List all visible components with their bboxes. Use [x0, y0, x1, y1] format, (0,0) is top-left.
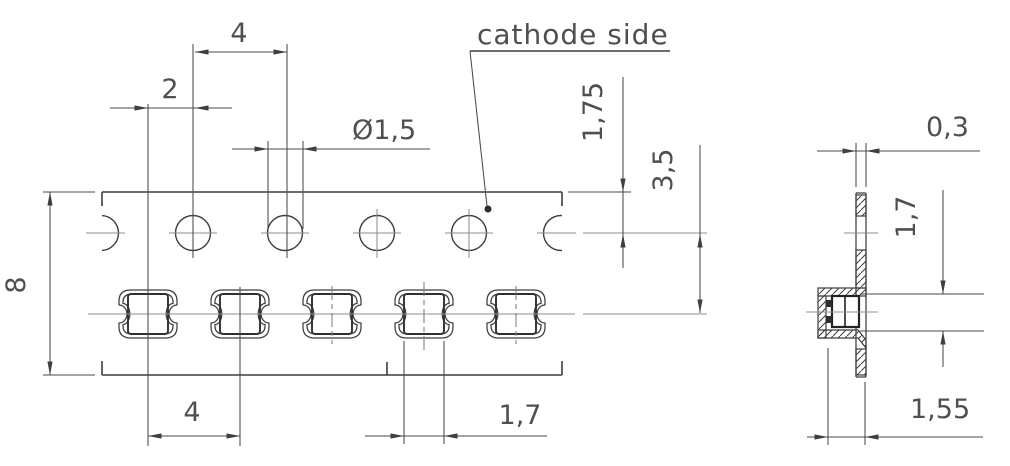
dim-hole-pitch-label: 4 — [230, 18, 247, 49]
dim-hole-offset-label: 2 — [161, 74, 178, 105]
component-pockets — [88, 104, 707, 446]
cathode-side-callout: cathode side — [470, 18, 670, 213]
dim-pocket-opening-label: 1,7 — [499, 400, 542, 431]
dim-pocket-inner: 1,7 — [860, 190, 984, 367]
dim-edge-to-holes-label: 1,75 — [578, 82, 609, 142]
side-view: 0,3 1,7 1,55 — [806, 112, 984, 445]
cathode-side-label: cathode side — [477, 18, 669, 51]
dim-pocket-depth-label: 1,55 — [910, 394, 970, 425]
dim-tape-width-label: 8 — [1, 276, 32, 293]
dim-holes-to-pockets: 3,5 — [648, 145, 703, 313]
dim-hole-diameter: Ø1,5 — [232, 115, 430, 229]
component-section — [806, 296, 878, 327]
tape-web-section — [844, 193, 878, 377]
engineering-drawing-carrier-tape: 8 4 2 Ø1,5 — [0, 0, 1010, 466]
sprocket-holes — [84, 44, 579, 258]
dim-edge-to-holes: 1,75 — [568, 77, 707, 268]
dim-tape-thickness-label: 0,3 — [926, 112, 969, 143]
dim-pocket-depth: 1,55 — [807, 348, 983, 445]
dim-hole-diameter-label: Ø1,5 — [352, 115, 416, 146]
tape-outline — [102, 192, 562, 375]
dim-tape-width: 8 — [1, 192, 95, 375]
dim-pocket-opening: 1,7 — [365, 341, 547, 444]
dim-holes-to-pockets-label: 3,5 — [648, 149, 679, 192]
dim-hole-pitch: 4 — [195, 18, 287, 55]
dim-hole-offset: 2 — [110, 74, 232, 111]
leader-dot — [485, 206, 492, 213]
dim-pocket-pitch-label: 4 — [183, 397, 200, 428]
dim-pocket-inner-label: 1,7 — [891, 196, 922, 239]
cathode-mark — [826, 300, 832, 307]
top-view: 8 4 2 Ø1,5 — [1, 18, 707, 446]
dim-pocket-pitch: 4 — [148, 397, 240, 439]
dim-tape-thickness: 0,3 — [817, 112, 980, 187]
cathode-mark — [826, 316, 832, 323]
